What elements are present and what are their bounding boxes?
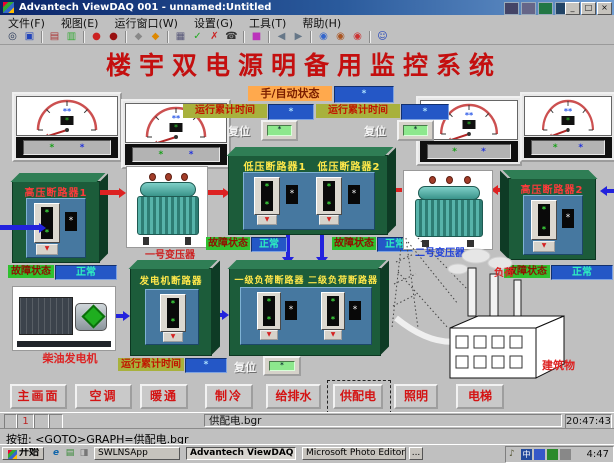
generator-breaker-title: 发电机断路器 [131,273,211,287]
status-cell-3 [34,414,49,429]
bar-chart-icon[interactable]: ▥ [64,30,79,43]
gen-runtime-label: 运行累计时间 [118,358,184,371]
titlebar-icon-3[interactable] [538,2,553,15]
load-breaker-1-title: 一级负荷断路器 [233,273,306,286]
titlebar-app-icons [504,2,570,15]
app-icon [3,2,14,13]
meter-symbol-icon: ** [63,107,71,116]
menu-settings[interactable]: 设置(G) [186,15,241,29]
task-photo-editor[interactable]: Microsoft Photo Editor [302,447,406,460]
meter-readout-strip: ** [16,137,118,158]
lv-breaker-panel: ** * ▼ ** * ▼ [243,172,375,230]
status-page-number: 1 [17,414,34,429]
status-cell-4 [49,414,63,429]
breaker-indicator: * [286,185,298,204]
meter-mini-readout: * [170,123,183,132]
incoming-supply-2-arrow [600,186,614,196]
load-tag: 负荷 [494,264,514,279]
start-button[interactable]: 开始 [2,447,44,460]
mode-status-label: 手/自动状态 [248,86,332,101]
incoming-supply-1-arrow [0,222,46,233]
gen-reset-label: 复位 [234,359,256,375]
breaker-switch-lever: ** [261,181,273,211]
transformer-leg [185,237,191,244]
breaker-switch[interactable]: ** [160,294,186,332]
breaker-switch-lever: ** [167,298,179,328]
restore-button[interactable]: □ [581,2,596,15]
reset-indicator: * [269,361,295,371]
globe-red-icon[interactable]: ◉ [350,30,365,43]
transformer1-to-lv-arrow [206,187,230,198]
generator-breaker-panel: ** ▼ [145,289,199,345]
tray-app-icon-2[interactable] [547,449,558,460]
breaker-trip-button[interactable]: ▼ [257,215,277,225]
meter-readout-strip: ** [125,144,227,165]
nav-elevator-button[interactable]: 电梯 [456,384,504,409]
dial-icon[interactable]: ☎ [224,30,239,43]
confirm-icon[interactable]: ✓ [190,30,205,43]
menu-bar: 文件(F) 视图(E) 运行窗口(W) 设置(G) 工具(T) 帮助(H) [0,15,614,29]
meter-value-green: * [50,143,55,153]
transformer-bushing-icon [446,176,453,184]
channels-icon[interactable]: ◨ [78,447,90,459]
generator-breaker-cabinet: 发电机断路器 ** ▼ [130,268,212,356]
breaker-trip-button[interactable]: ▼ [260,330,278,340]
toolbar: ◎ ▣ ▤ ▥ ● ● ◆ ◆ ▦ ✓ ✗ ☎ ■ ◀ ▶ ◉ ◉ ◉ ☺ [0,29,614,45]
reset-1-label: 复位 [228,123,250,139]
lv-breaker-1-title: 低压断路器1 [239,158,311,173]
operator-icon[interactable]: ☺ [375,30,390,43]
close-button[interactable]: × [597,2,612,15]
menu-tools[interactable]: 工具(T) [241,15,294,29]
titlebar-icon-1[interactable] [504,2,519,15]
breaker-switch-lever: ** [263,296,275,326]
alarm-ball-red-icon[interactable]: ● [89,30,104,43]
alarm-ball-dark-icon[interactable]: ● [106,30,121,43]
hv-breaker-2-title: 高压断路器2 [509,181,595,196]
meter-mini-readout: * [463,120,476,129]
hv1-fault-status-value: 正常 [55,265,117,280]
meter-value-blue: * [481,147,486,157]
report-icon[interactable]: ▦ [173,30,188,43]
monitor-icon[interactable]: ▣ [22,30,37,43]
breaker-indicator: * [348,185,360,204]
tag-orange-icon[interactable]: ◆ [148,30,163,43]
tag-gray-icon[interactable]: ◆ [131,30,146,43]
breaker-switch[interactable]: ** [254,177,280,215]
transformer-bushing-icon [464,176,471,184]
lv2-fault-status-label: 故障状态 [332,237,376,250]
transformer-leg [143,237,149,244]
transformer-bushing-icon [429,176,436,184]
breaker-switch[interactable]: ** [316,177,342,215]
ie-icon[interactable]: e [50,447,62,459]
nav-lighting-button[interactable]: 照明 [394,384,438,409]
reset-2-button[interactable]: * [397,120,434,141]
desktop-icon[interactable]: ▤ [64,447,76,459]
meter-value-blue: * [189,150,194,160]
transformer-body [137,196,200,235]
transformer-1-image [126,166,208,248]
meter-mini-readout: * [61,116,74,125]
reset-indicator: * [403,125,428,136]
meter-face: ** * [16,96,118,136]
load-breaker-cabinet: 一级负荷断路器 二级负荷断路器 ** ▼ * ** ▼ * [229,268,381,356]
load-breaker-2-title: 二级负荷断路器 [307,273,379,286]
gen-runtime-value: * [185,358,227,373]
trend-chart-icon[interactable]: ▤ [47,30,62,43]
nav-aircon-button[interactable]: 空调 [75,384,132,409]
building-graphic [388,232,566,380]
reset-2-label: 复位 [364,123,386,139]
taskbar: 开始 e ▤ ◨ SWLNSApp Advantech ViewDAQ 00..… [0,444,614,462]
analog-meter-4: ** * ** [520,92,614,162]
transformer-bushing-icon [165,173,172,181]
meter-symbol-icon: ** [465,111,473,120]
lv-breaker-2-title: 低压断路器2 [313,158,385,173]
hv1-fault-status-label: 故障状态 [8,265,54,278]
globe-brown-icon[interactable]: ◉ [333,30,348,43]
network-icon[interactable] [560,449,571,460]
meter-symbol-icon: ** [172,114,180,123]
breaker-indicator: * [349,301,361,320]
status-current-graph: 供配电.bgr [204,414,562,427]
meter-readout-strip: ** [524,137,612,158]
breaker-switch[interactable]: ** [257,292,281,330]
status-bar: 1 供配电.bgr 20:47:43 [0,412,614,428]
palette-icon[interactable]: ■ [249,30,264,43]
hv-breaker-1-title: 高压断路器1 [13,184,99,199]
transformer-1-label: 一号变压器 [138,246,202,261]
window-title: Advantech ViewDAQ 001 - unnamed:Untitled [19,2,271,13]
lv1-fault-status-value: 正常 [251,237,287,252]
status-clock: 20:47:43 [565,414,612,429]
reset-1-button[interactable]: * [261,120,298,141]
generator-base [17,341,111,347]
nav-hvac-button[interactable]: 暖通 [140,384,188,409]
breaker-switch[interactable]: ** [321,292,345,330]
back-icon[interactable]: ◀ [274,30,289,43]
gen-reset-button[interactable]: * [263,356,301,376]
tray-app-icon-1[interactable] [534,449,545,460]
meter-value-green: * [159,150,164,160]
nav-refrigeration-button[interactable]: 制冷 [205,384,253,409]
menu-file[interactable]: 文件(F) [0,15,53,29]
meter-value-green: * [452,147,457,157]
nav-main-screen-button[interactable]: 主画面 [10,384,67,409]
task-swlnsapp[interactable]: SWLNSApp [94,447,180,460]
meter-value-blue: * [80,143,85,153]
breaker-trip-button[interactable]: ▼ [324,330,342,340]
mode-status-value: * [334,86,394,103]
title-bar: Advantech ViewDAQ 001 - unnamed:Untitled… [0,0,614,15]
meter-face: ** * [524,96,612,136]
speaker-icon[interactable]: ♪ [509,449,515,459]
breaker-trip-button[interactable]: ▼ [319,215,339,225]
runtime-2-label: 运行累计时间 [316,104,400,118]
diesel-generator-image [12,286,116,351]
runtime-1-label: 运行累计时间 [183,104,267,118]
menu-help[interactable]: 帮助(H) [294,15,349,29]
analog-meter-1: ** * ** [12,92,122,162]
menu-view[interactable]: 视图(E) [53,15,107,29]
meter-value-green: * [553,143,558,153]
building-label: 建筑物 [542,357,575,373]
lv1-fault-status-label: 故障状态 [206,237,250,250]
runtime-1-value: * [268,104,314,120]
power-line-dashes [392,238,470,328]
lv-breaker-cabinet: 低压断路器1 低压断路器2 ** * ▼ ** * ▼ [228,155,388,235]
windows-logo-icon [8,450,17,459]
minimize-button[interactable]: _ [565,2,580,15]
breaker-indicator: * [65,212,77,231]
meter-symbol-icon: ** [564,107,572,116]
task-viewdaq[interactable]: Advantech ViewDAQ 00... [186,447,296,460]
breaker-trip-button[interactable]: ▼ [36,244,58,255]
reset-indicator: * [267,125,292,136]
meter-readout-strip: ** [420,141,518,162]
meter-value-blue: * [578,143,583,153]
ime-icon[interactable]: 中 [521,449,532,460]
runtime-2-value: * [401,104,449,120]
breaker-indicator: * [562,209,574,228]
breaker-trip-button[interactable]: ▼ [163,332,183,342]
transformer-bushing-icon [149,173,156,181]
nav-water-supply-button[interactable]: 给排水 [266,384,321,409]
menu-run-window[interactable]: 运行窗口(W) [106,15,185,29]
system-tray: ♪ 中 4:47 [505,446,614,463]
load-breaker-panel: ** ▼ * ** ▼ * [240,287,372,345]
diesel-generator-label: 柴油发电机 [28,350,112,366]
status-cell-1 [4,414,17,429]
breaker-indicator: * [285,301,297,320]
transformer-tank [140,182,196,197]
cancel-icon[interactable]: ✗ [207,30,222,43]
prompt-bar: 按钮: <GOTO>GRAPH=供配电.bgr [0,428,614,445]
breaker-switch-lever: ** [327,296,339,326]
meter-mini-readout: * [562,116,575,125]
forward-icon[interactable]: ▶ [291,30,306,43]
titlebar-icon-2[interactable] [521,2,536,15]
tray-clock: 4:47 [587,449,609,460]
generator-engine [19,297,73,335]
nav-focus-outline [327,380,391,414]
task-overflow-button[interactable]: ... [409,447,423,460]
zoom-icon[interactable]: ◎ [5,30,20,43]
hv1-to-transformer1-arrow [100,187,126,198]
globe-blue-icon[interactable]: ◉ [316,30,331,43]
breaker-switch-lever: ** [323,181,335,211]
page-title: 楼宇双电源明备用监控系统 [92,46,516,82]
transformer-bushing-icon [181,173,188,181]
